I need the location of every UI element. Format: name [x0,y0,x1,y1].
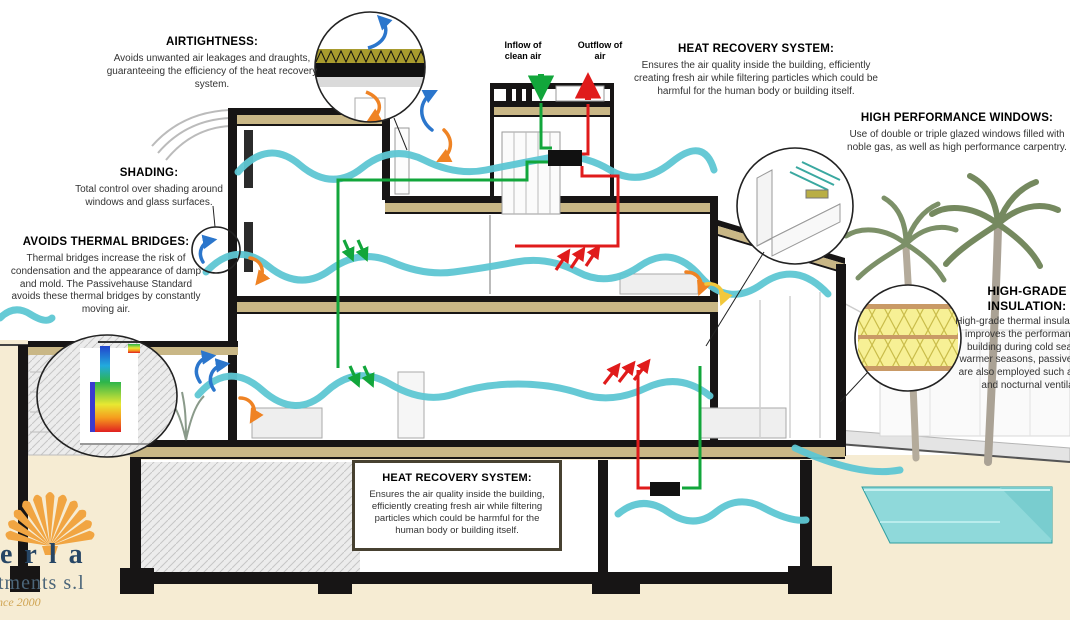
thermal-bridge-detail-circle [37,335,177,459]
annotation-high-grade-insulation-title: HIGH-GRADE INSULATION: [975,284,1070,319]
annotation-heat-recovery-bottom: HEAT RECOVERY SYSTEM: Ensures the air qu… [352,460,562,551]
annotation-title: HIGH PERFORMANCE WINDOWS: [843,112,1070,124]
annotation-body: Ensures the air quality inside the build… [363,489,551,538]
annotation-title: AVOIDS THERMAL BRIDGES: [8,236,204,248]
logo-tagline-fragment: nce 2000 [0,595,41,610]
annotation-body: Ensures the air quality inside the build… [625,60,887,98]
annotation-high-performance-windows: HIGH PERFORMANCE WINDOWS: Use of double … [843,112,1070,155]
annotation-body: Use of double or triple glazed windows f… [843,129,1070,155]
annotation-title: HIGH-GRADE INSULATION: [975,284,1070,314]
passivhaus-infographic: AIRTIGHTNESS: Avoids unwanted air leakag… [0,0,1070,620]
annotation-body: High-grade thermal insulation greatly im… [955,316,1070,393]
annotation-high-grade-insulation-body: High-grade thermal insulation greatly im… [955,316,1070,393]
annotation-title: HEAT RECOVERY SYSTEM: [363,472,551,484]
swimming-pool [862,487,1052,543]
logo-subtitle-fragment: tments s.l [0,572,85,595]
annotation-title: SHADING: [55,167,243,179]
annotation-body: Thermal bridges increase the risk of con… [8,253,204,317]
annotation-title: AIRTIGHTNESS: [98,36,326,48]
outflow-label: Outflow of air [577,40,623,63]
annotation-heat-recovery-top: HEAT RECOVERY SYSTEM: Ensures the air qu… [625,43,887,98]
annotation-shading: SHADING: Total control over shading arou… [55,167,243,210]
annotation-body: Avoids unwanted air leakages and draught… [98,53,326,91]
annotation-airtightness: AIRTIGHTNESS: Avoids unwanted air leakag… [98,36,326,91]
inflow-label: Inflow of clean air [498,40,548,63]
logo-company-name-fragment: erla [0,539,95,571]
annotation-thermal-bridges: AVOIDS THERMAL BRIDGES: Thermal bridges … [8,236,204,317]
annotation-body: Total control over shading around window… [55,184,243,210]
annotation-title: HEAT RECOVERY SYSTEM: [625,43,887,55]
